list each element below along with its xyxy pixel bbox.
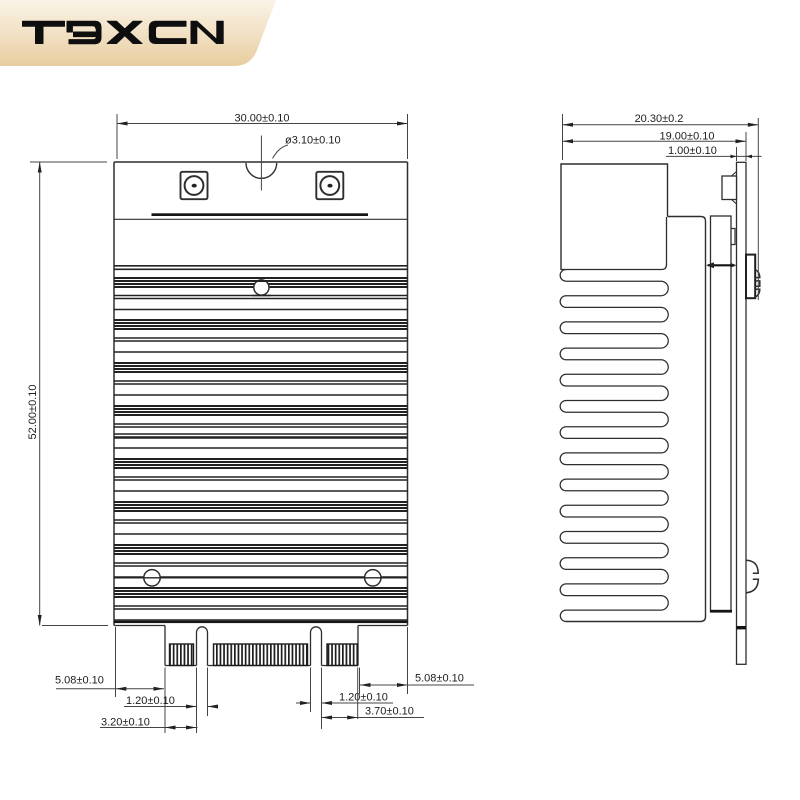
- svg-text:52.00±0.10: 52.00±0.10: [27, 385, 39, 440]
- svg-text:30.00±0.10: 30.00±0.10: [235, 113, 290, 125]
- svg-text:3.20±0.10: 3.20±0.10: [101, 717, 150, 729]
- svg-text:1.20±0.10: 1.20±0.10: [339, 692, 388, 704]
- svg-text:5.08±0.10: 5.08±0.10: [415, 673, 464, 685]
- svg-text:19.00±0.10: 19.00±0.10: [660, 131, 715, 143]
- svg-text:3.70±0.10: 3.70±0.10: [365, 706, 414, 718]
- svg-text:5.08±0.10: 5.08±0.10: [55, 675, 104, 687]
- svg-text:1.20±0.10: 1.20±0.10: [126, 695, 175, 707]
- svg-text:ø3.10±0.10: ø3.10±0.10: [285, 135, 341, 147]
- svg-text:20.30±0.2: 20.30±0.2: [635, 113, 684, 125]
- svg-text:1.00±0.10: 1.00±0.10: [668, 145, 717, 157]
